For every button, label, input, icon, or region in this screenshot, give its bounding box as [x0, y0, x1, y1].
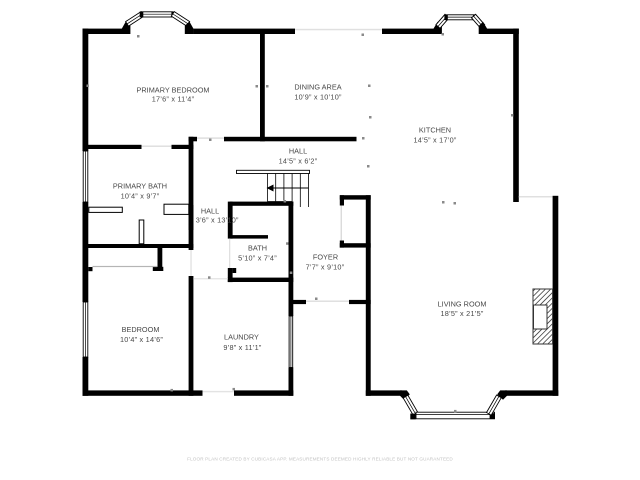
- svg-text:LAUNDRY: LAUNDRY: [224, 333, 259, 342]
- svg-text:BEDROOM: BEDROOM: [122, 325, 160, 334]
- svg-text:DINING AREA: DINING AREA: [294, 83, 341, 92]
- svg-text:BATH: BATH: [248, 244, 267, 253]
- svg-text:17’6” x 11’4”: 17’6” x 11’4”: [152, 95, 195, 104]
- svg-text:FLOOR PLAN CREATED BY CUBICASA: FLOOR PLAN CREATED BY CUBICASA APP. MEAS…: [187, 457, 453, 462]
- svg-text:9’8” x 11’1”: 9’8” x 11’1”: [223, 343, 262, 352]
- svg-text:14’5” x 6’2”: 14’5” x 6’2”: [279, 157, 318, 166]
- svg-text:HALL: HALL: [201, 207, 219, 216]
- svg-text:FOYER: FOYER: [313, 253, 338, 262]
- svg-text:PRIMARY BATH: PRIMARY BATH: [113, 182, 167, 191]
- svg-text:HALL: HALL: [289, 147, 307, 156]
- svg-text:7’7” x 9’10”: 7’7” x 9’10”: [306, 263, 345, 272]
- svg-text:14’5” x 17’0”: 14’5” x 17’0”: [413, 136, 456, 145]
- svg-text:10’9” x 10’10”: 10’9” x 10’10”: [294, 93, 342, 102]
- svg-text:KITCHEN: KITCHEN: [419, 126, 451, 135]
- svg-text:10’4” x 9’7”: 10’4” x 9’7”: [121, 192, 160, 201]
- svg-text:5’10” x 7’4”: 5’10” x 7’4”: [238, 254, 277, 263]
- svg-text:3’6” x 13’10”: 3’6” x 13’10”: [196, 216, 239, 225]
- svg-text:10’4” x 14’6”: 10’4” x 14’6”: [120, 335, 163, 344]
- svg-text:LIVING ROOM: LIVING ROOM: [438, 300, 487, 309]
- svg-text:18’5” x 21’5”: 18’5” x 21’5”: [440, 309, 483, 318]
- svg-text:PRIMARY BEDROOM: PRIMARY BEDROOM: [136, 86, 209, 95]
